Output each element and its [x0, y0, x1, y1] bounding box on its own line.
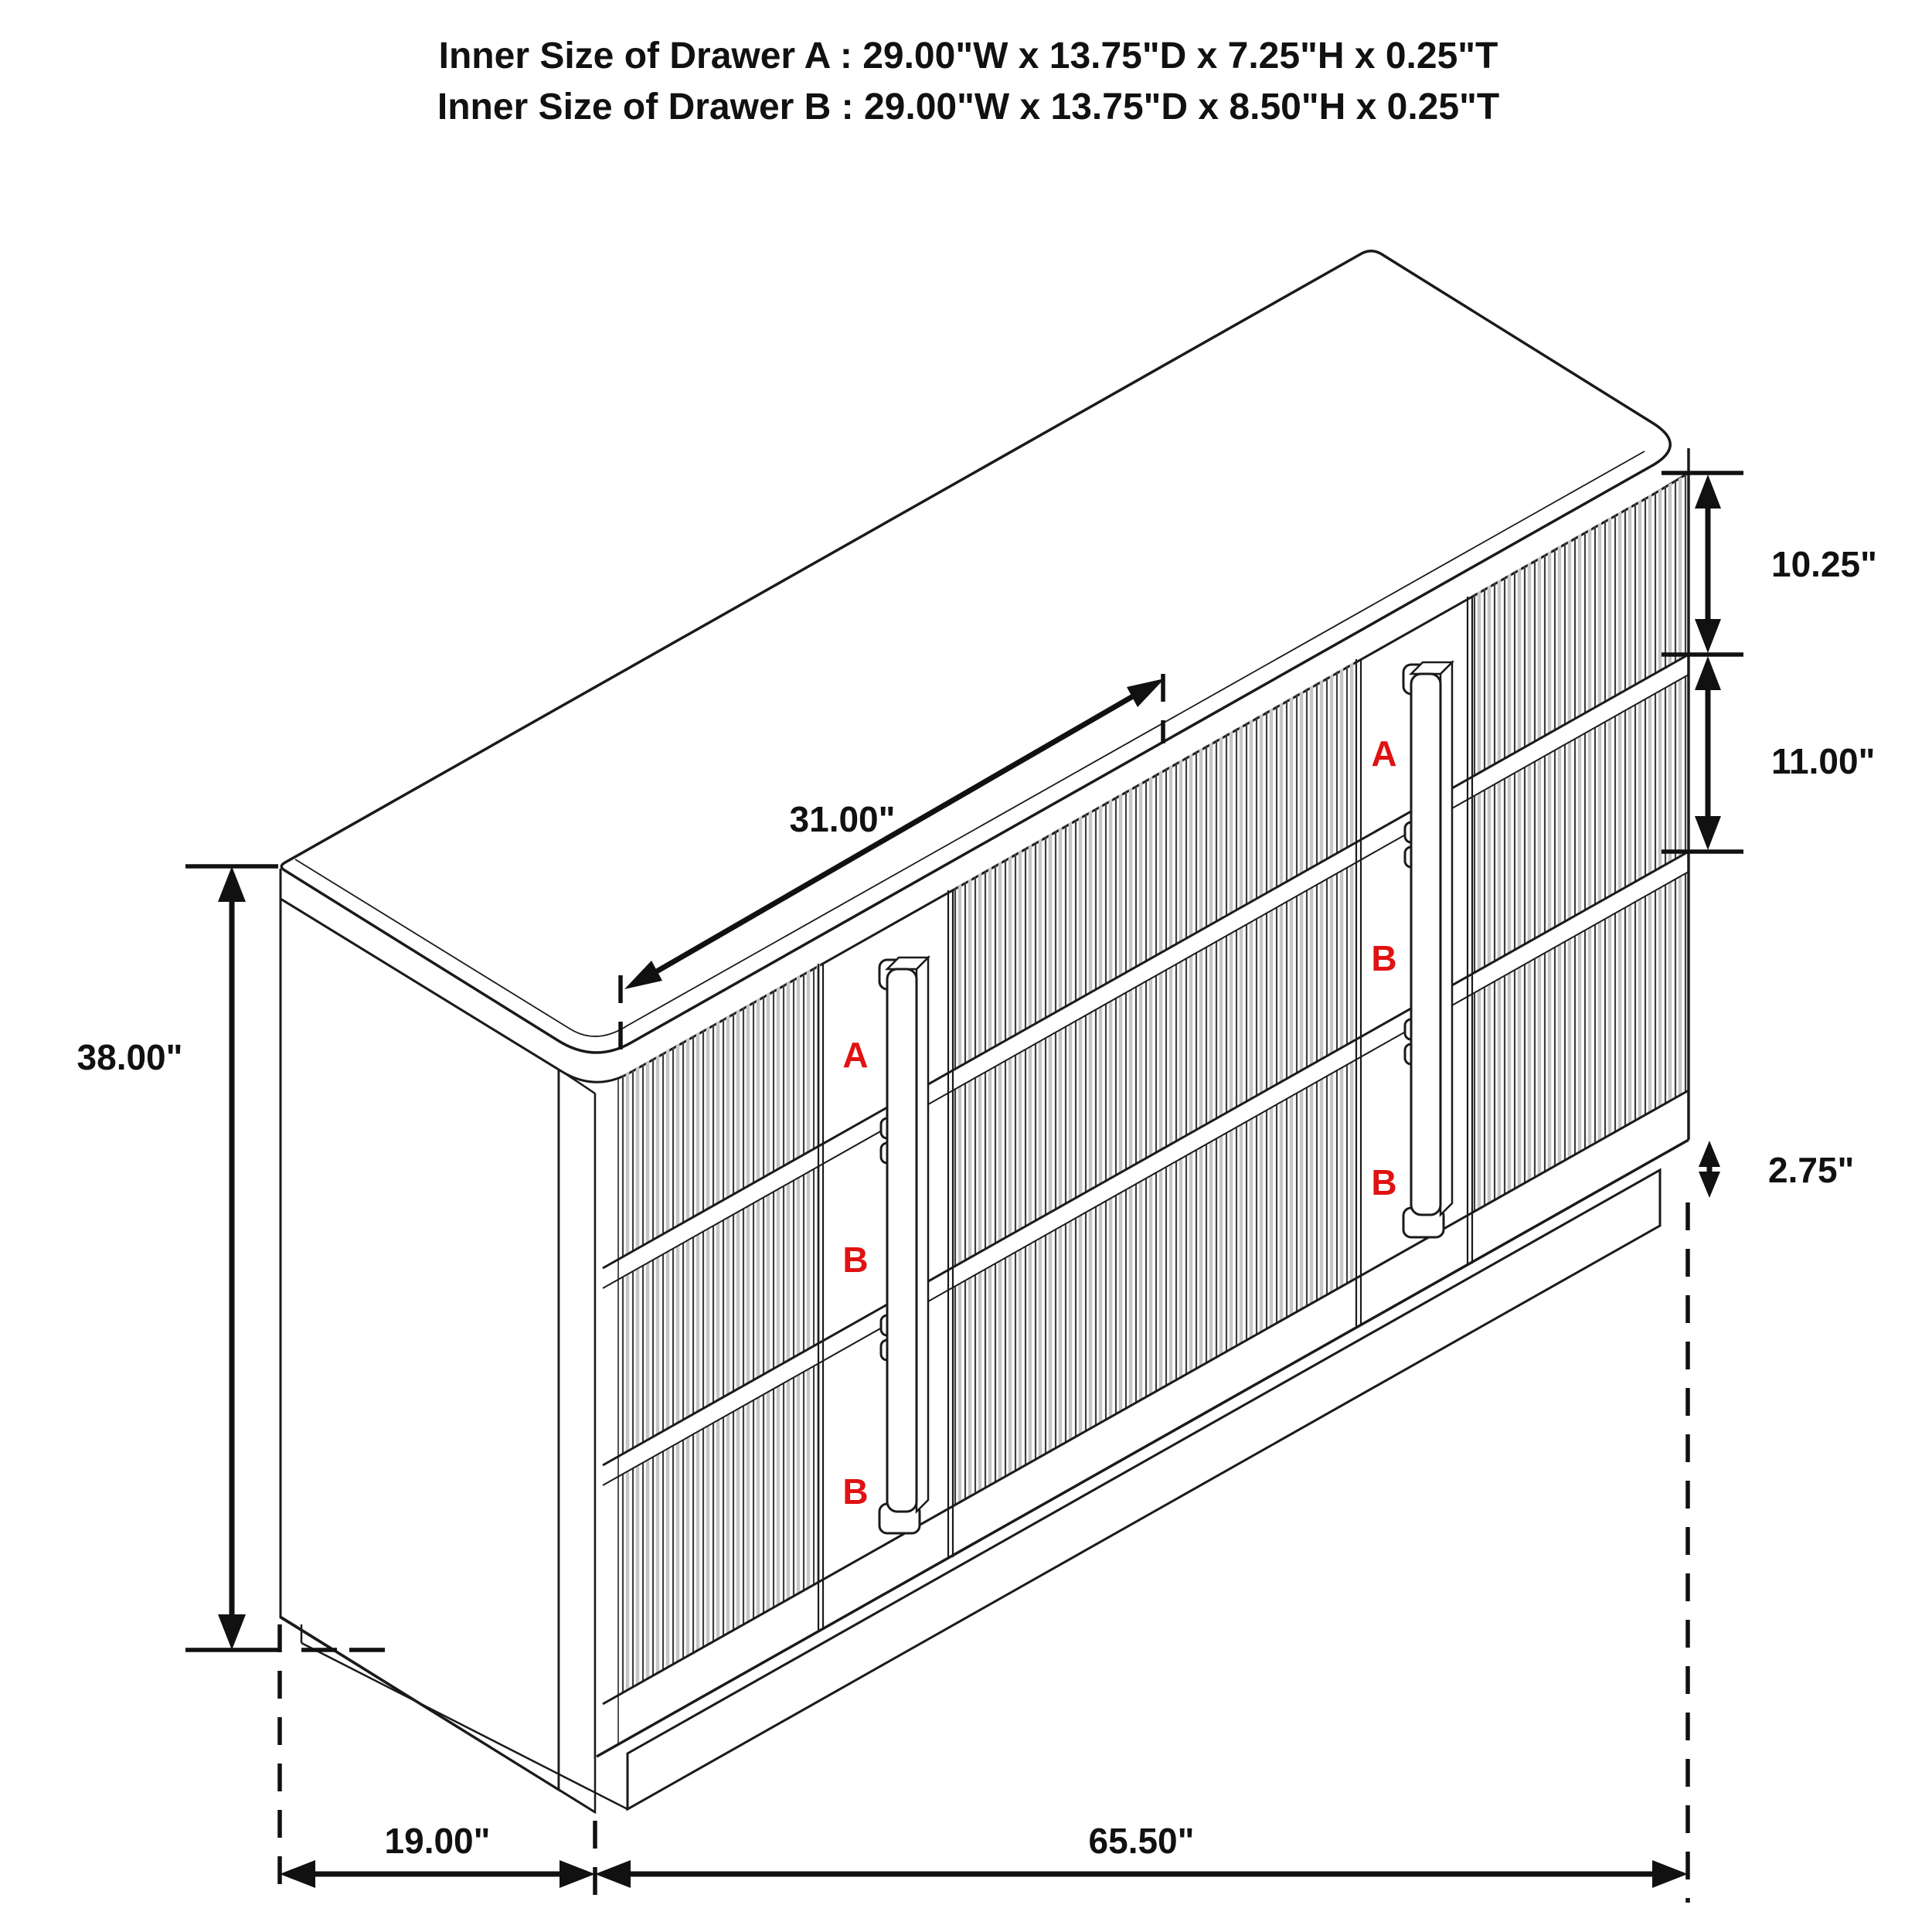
- diagram-canvas: A B B A B B 31.00" 38.00" 10.25": [0, 0, 1932, 1932]
- drawer-handle-right: [1403, 662, 1452, 1237]
- figure-title: Inner Size of Drawer A : 29.00"W x 13.75…: [437, 36, 1499, 128]
- drawer-label-right-b2: B: [1371, 1162, 1396, 1202]
- cabinet-drawing: A B B A B B: [281, 251, 1690, 1812]
- figure-title-line-2: Inner Size of Drawer B : 29.00"W x 13.75…: [437, 87, 1499, 128]
- dim-depth: 19.00": [280, 1821, 595, 1888]
- drawer-label-right-b1: B: [1371, 938, 1396, 978]
- figure-title-line-1: Inner Size of Drawer A : 29.00"W x 13.75…: [439, 36, 1498, 77]
- dim-width: 65.50": [595, 1821, 1688, 1888]
- dim-depth-label: 19.00": [385, 1821, 491, 1861]
- drawer-handle-left: [879, 957, 928, 1533]
- dim-base-height-label: 2.75": [1768, 1150, 1854, 1190]
- dim-drawer-b-label: 11.00": [1771, 741, 1875, 781]
- front-left-corner-face: [559, 1070, 595, 1812]
- dim-overall-height-label: 38.00": [77, 1037, 183, 1077]
- dim-base-height: 2.75": [1699, 1141, 1854, 1198]
- furniture-dimension-diagram: A B B A B B 31.00" 38.00" 10.25": [0, 0, 1932, 1932]
- drawer-label-left-a: A: [842, 1035, 868, 1075]
- dim-drawer-b-height: 11.00": [1662, 656, 1875, 852]
- drawer-label-left-b2: B: [842, 1471, 868, 1512]
- dim-drawer-a-label: 10.25": [1771, 544, 1877, 584]
- drawer-label-right-a: A: [1371, 733, 1396, 774]
- dim-drawer-a-height: 10.25": [1662, 473, 1877, 655]
- dim-top-diagonal-label: 31.00": [790, 799, 896, 839]
- dim-width-label: 65.50": [1089, 1821, 1195, 1861]
- drawer-label-left-b1: B: [842, 1240, 868, 1280]
